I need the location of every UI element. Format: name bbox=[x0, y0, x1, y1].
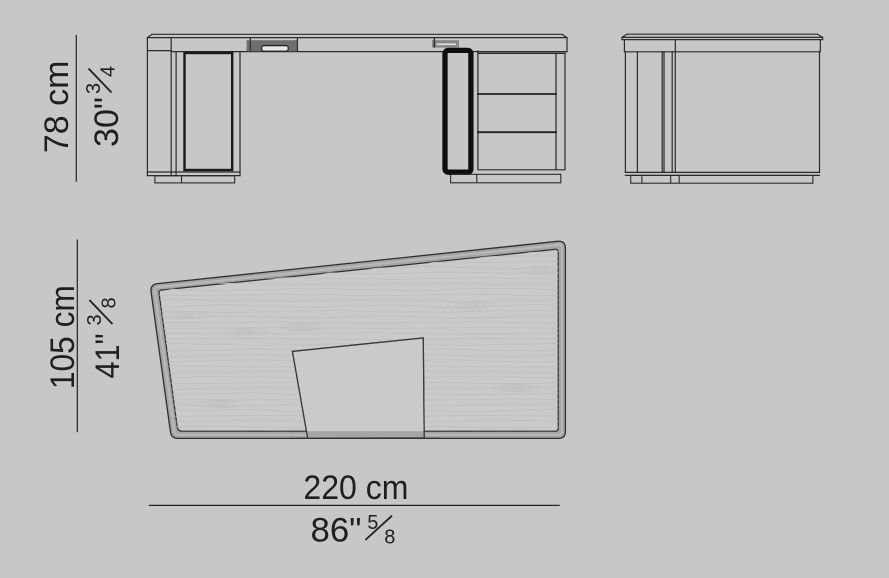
svg-text:78 cm: 78 cm bbox=[38, 61, 76, 154]
svg-text:220 cm: 220 cm bbox=[303, 469, 408, 507]
svg-text:8: 8 bbox=[384, 527, 395, 549]
svg-text:8: 8 bbox=[98, 297, 120, 308]
svg-text:41": 41" bbox=[89, 334, 127, 379]
svg-text:30": 30" bbox=[88, 97, 126, 147]
svg-text:3: 3 bbox=[83, 83, 105, 94]
svg-text:86": 86" bbox=[311, 511, 362, 549]
svg-text:105 cm: 105 cm bbox=[44, 285, 82, 389]
svg-text:4: 4 bbox=[98, 66, 120, 77]
svg-text:3: 3 bbox=[84, 314, 106, 325]
svg-text:5: 5 bbox=[367, 512, 378, 534]
